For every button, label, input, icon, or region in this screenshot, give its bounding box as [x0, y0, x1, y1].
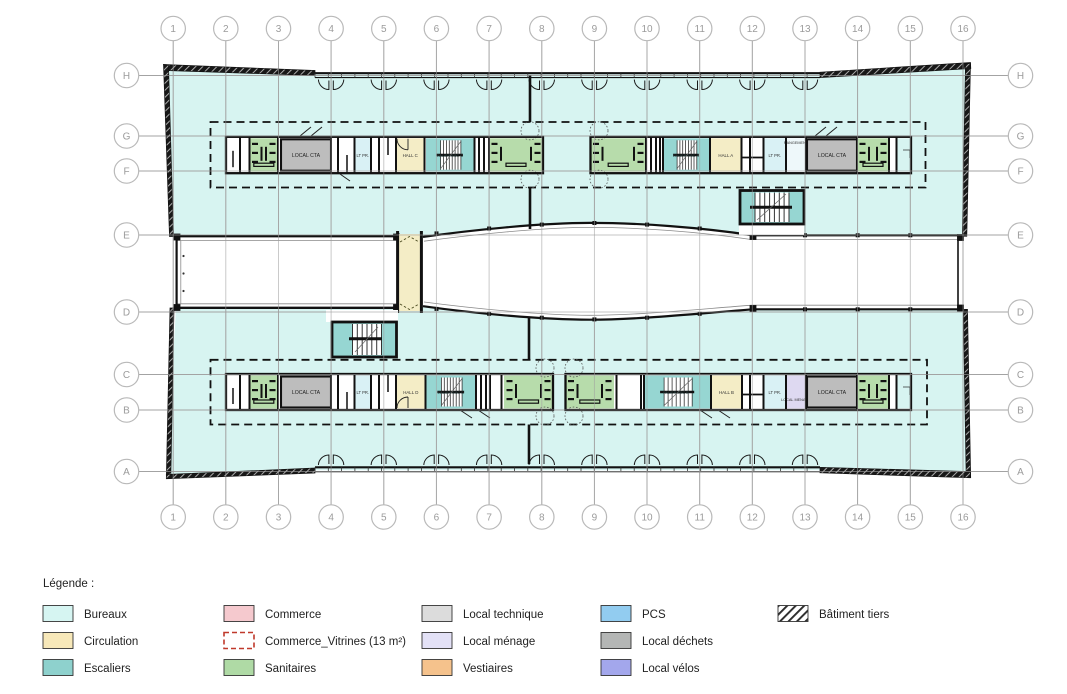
svg-text:B: B: [1017, 406, 1024, 417]
svg-text:Commerce_Vitrines (13 m²): Commerce_Vitrines (13 m²): [265, 636, 406, 648]
svg-text:1: 1: [170, 513, 176, 524]
svg-text:PALIER ESC D: PALIER ESC D: [438, 391, 464, 395]
svg-text:16: 16: [957, 24, 969, 35]
svg-text:Bâtiment tiers: Bâtiment tiers: [819, 609, 890, 621]
svg-text:H: H: [1017, 71, 1024, 82]
svg-text:13: 13: [799, 24, 811, 35]
svg-text:4: 4: [328, 513, 334, 524]
svg-text:11: 11: [695, 24, 706, 35]
svg-text:14: 14: [852, 513, 864, 524]
svg-text:C: C: [1017, 370, 1024, 381]
svg-text:LT PR.: LT PR.: [356, 390, 369, 395]
svg-text:PALIER ESC C: PALIER ESC C: [437, 154, 463, 158]
svg-text:16: 16: [957, 513, 969, 524]
svg-text:LOCAL CTA: LOCAL CTA: [818, 390, 847, 396]
svg-text:14: 14: [852, 24, 864, 35]
svg-text:A: A: [123, 467, 130, 478]
svg-text:8: 8: [539, 513, 545, 524]
svg-text:7: 7: [486, 24, 492, 35]
svg-text:Local ménage: Local ménage: [463, 636, 535, 648]
svg-text:HALL A: HALL A: [718, 153, 733, 158]
svg-text:9: 9: [592, 513, 598, 524]
svg-text:G: G: [1017, 132, 1025, 143]
svg-text:D: D: [123, 308, 130, 319]
svg-text:G: G: [123, 132, 131, 143]
svg-text:F: F: [1017, 167, 1023, 178]
svg-text:LOCAL CTA: LOCAL CTA: [292, 153, 321, 159]
svg-text:3: 3: [276, 513, 282, 524]
svg-text:10: 10: [641, 24, 653, 35]
svg-text:LOCAL CTA: LOCAL CTA: [818, 153, 847, 159]
svg-text:Circulation: Circulation: [84, 636, 138, 648]
svg-text:F: F: [123, 167, 129, 178]
svg-text:Escaliers: Escaliers: [84, 663, 131, 675]
svg-text:D: D: [1017, 308, 1024, 319]
svg-text:12: 12: [747, 513, 759, 524]
svg-text:9: 9: [592, 24, 598, 35]
svg-text:Vestiaires: Vestiaires: [463, 663, 513, 675]
svg-text:HALL C: HALL C: [403, 153, 418, 158]
svg-text:15: 15: [905, 24, 917, 35]
svg-text:2: 2: [223, 24, 229, 35]
svg-text:12: 12: [747, 24, 759, 35]
svg-text:E: E: [1017, 231, 1024, 242]
svg-text:LT PR.: LT PR.: [356, 153, 369, 158]
svg-text:HALL B: HALL B: [719, 390, 734, 395]
svg-text:Bureaux: Bureaux: [84, 609, 127, 621]
svg-text:Commerce: Commerce: [265, 609, 321, 621]
svg-text:1: 1: [170, 24, 176, 35]
svg-text:B: B: [123, 406, 130, 417]
svg-text:5: 5: [381, 24, 387, 35]
svg-text:8: 8: [539, 24, 545, 35]
svg-text:5: 5: [381, 513, 387, 524]
svg-text:Local technique: Local technique: [463, 609, 544, 621]
svg-text:A: A: [1017, 467, 1024, 478]
svg-text:11: 11: [695, 513, 706, 524]
svg-text:PALIER ESC A: PALIER ESC A: [673, 154, 699, 158]
svg-text:LT PR.: LT PR.: [768, 390, 781, 395]
svg-text:Sanitaires: Sanitaires: [265, 663, 316, 675]
svg-text:Local déchets: Local déchets: [642, 636, 713, 648]
svg-text:13: 13: [799, 513, 811, 524]
svg-text:Légende :: Légende :: [43, 578, 94, 590]
svg-text:6: 6: [434, 513, 440, 524]
svg-text:6: 6: [434, 24, 440, 35]
svg-text:LOCAL CTA: LOCAL CTA: [292, 390, 321, 396]
svg-text:7: 7: [486, 513, 492, 524]
svg-text:2: 2: [223, 513, 229, 524]
svg-text:15: 15: [905, 513, 917, 524]
svg-text:LT PR.: LT PR.: [768, 153, 781, 158]
svg-text:C: C: [123, 370, 130, 381]
svg-text:HALL D: HALL D: [403, 390, 418, 395]
svg-text:10: 10: [641, 513, 653, 524]
svg-text:PALIER ESC B: PALIER ESC B: [663, 391, 689, 395]
svg-text:Local vélos: Local vélos: [642, 663, 700, 675]
svg-text:3: 3: [276, 24, 282, 35]
svg-text:E: E: [123, 231, 130, 242]
svg-text:4: 4: [328, 24, 334, 35]
svg-text:H: H: [123, 71, 130, 82]
svg-text:PCS: PCS: [642, 609, 666, 621]
